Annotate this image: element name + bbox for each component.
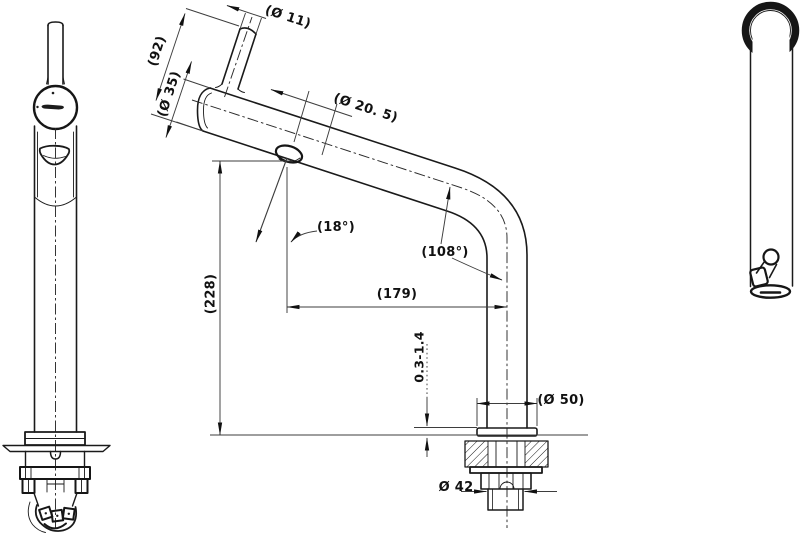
dim-label-shank-diameter: Ø 42 (439, 480, 474, 495)
front-knob-dot (52, 92, 55, 95)
hatch-left (465, 441, 488, 467)
dim-label-bend-angle: (108°) (421, 245, 468, 260)
background (0, 0, 800, 536)
dim-label-deck-range: 0.3-1.4 (412, 331, 427, 383)
faucet-technical-drawing: (228) (179) (18°) (108°) (Ø 50) 0.3-1.4 … (0, 0, 800, 536)
drawing-canvas: (228) (179) (18°) (108°) (Ø 50) 0.3-1.4 … (0, 0, 800, 536)
hatch-right (525, 441, 548, 467)
ring-mask (753, 30, 790, 72)
dim-label-spout-angle: (18°) (317, 220, 355, 235)
dim-label-height-above-deck: (228) (204, 274, 219, 315)
dim-label-flange-diameter: (Ø 50) (537, 393, 584, 408)
dim-label-spout-reach: (179) (377, 287, 418, 302)
